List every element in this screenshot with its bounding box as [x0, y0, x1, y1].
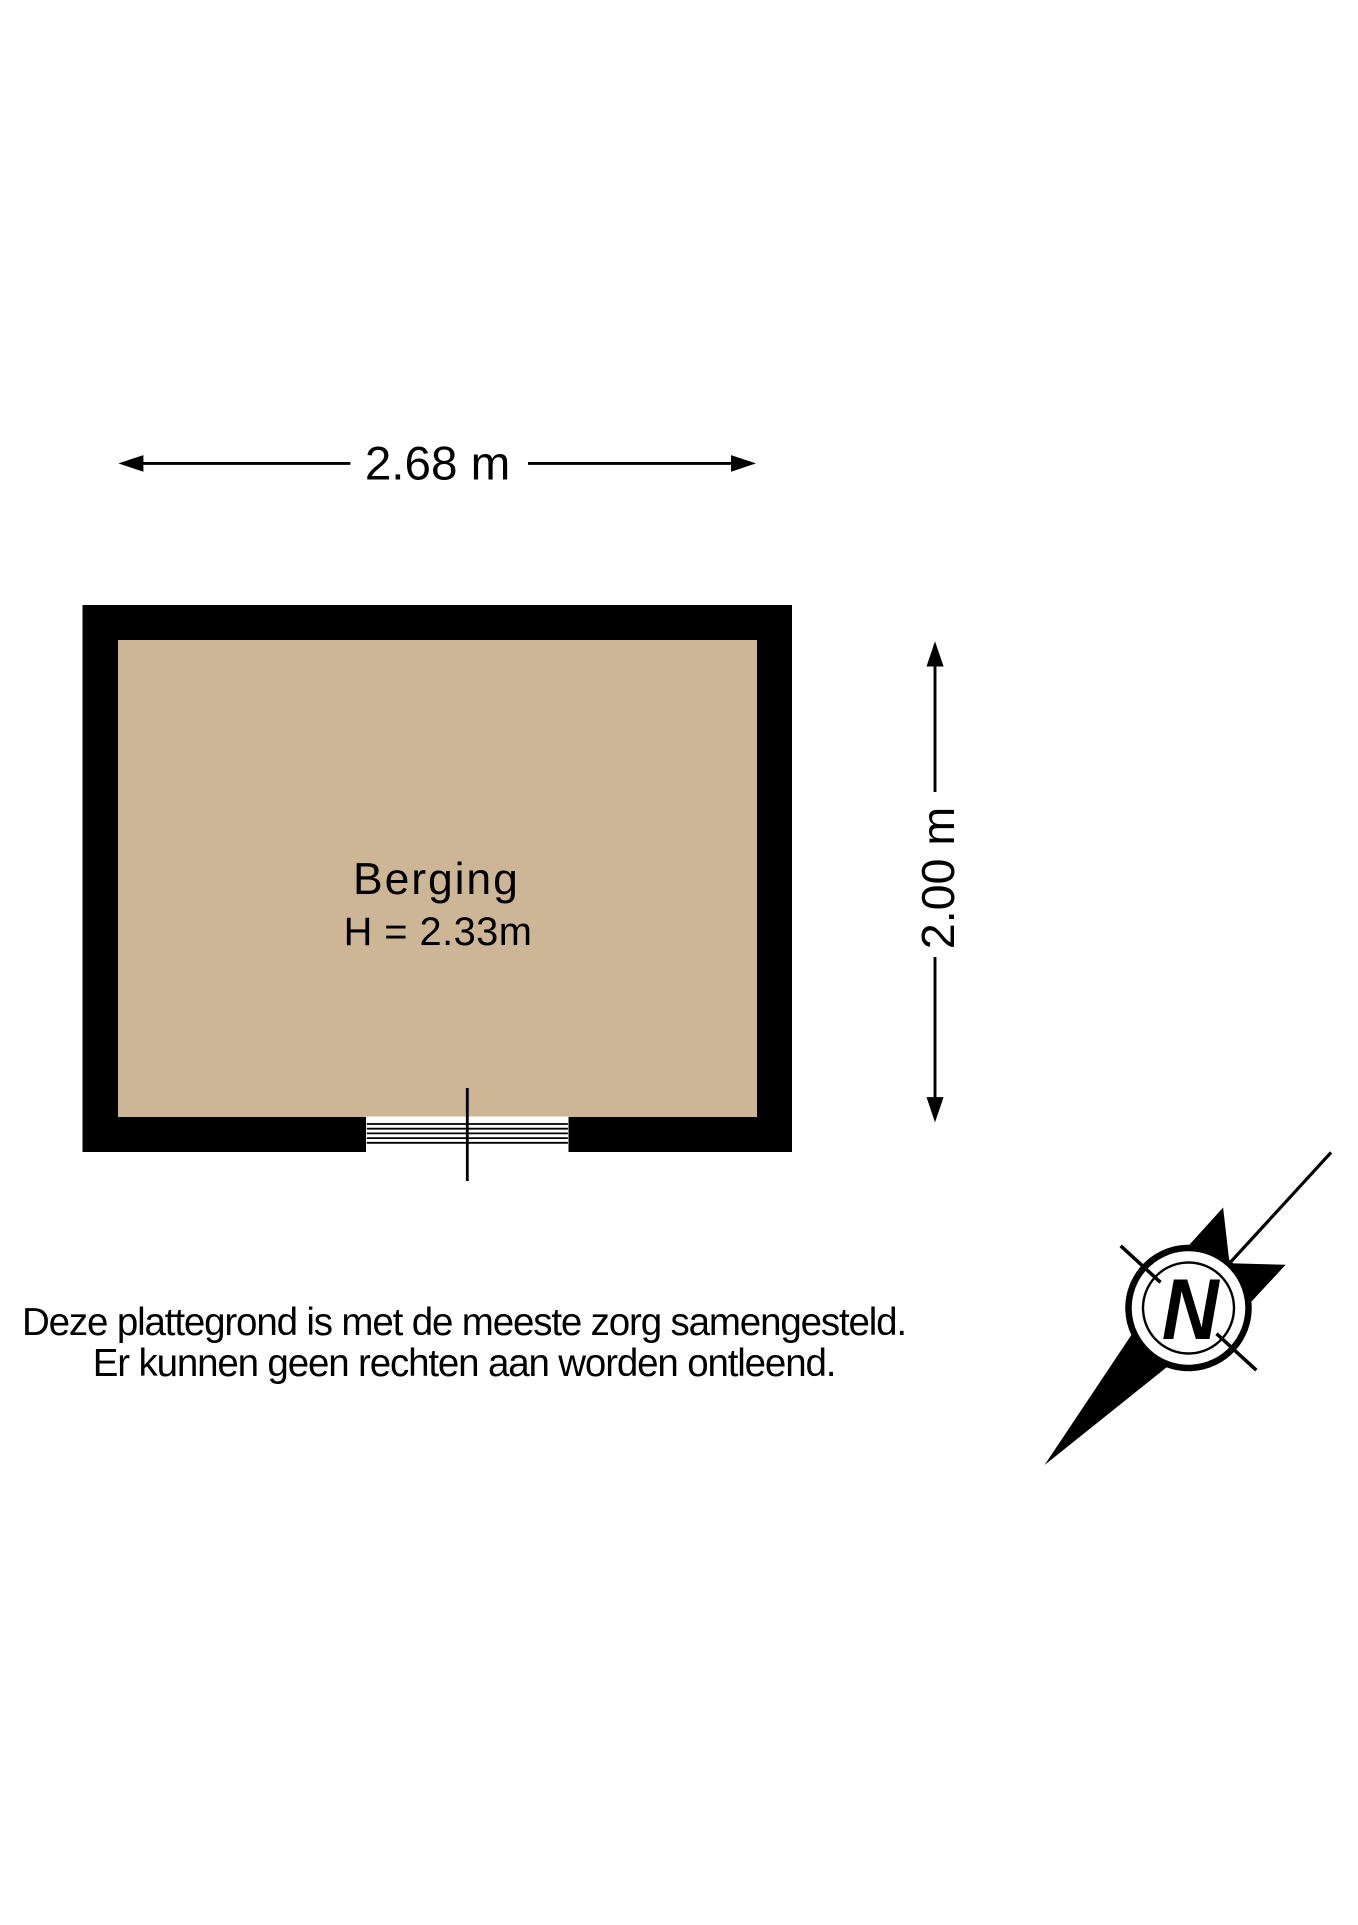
svg-text:H = 2.33m: H = 2.33m [344, 910, 533, 954]
svg-text:Er kunnen geen rechten aan wor: Er kunnen geen rechten aan worden ontlee… [93, 1342, 836, 1385]
svg-text:Berging: Berging [353, 855, 520, 904]
svg-text:N: N [1162, 1260, 1221, 1357]
svg-text:2.68 m: 2.68 m [365, 437, 511, 490]
svg-text:2.00 m: 2.00 m [912, 807, 964, 949]
svg-text:Deze plattegrond is met de mee: Deze plattegrond is met de meeste zorg s… [22, 1301, 906, 1344]
